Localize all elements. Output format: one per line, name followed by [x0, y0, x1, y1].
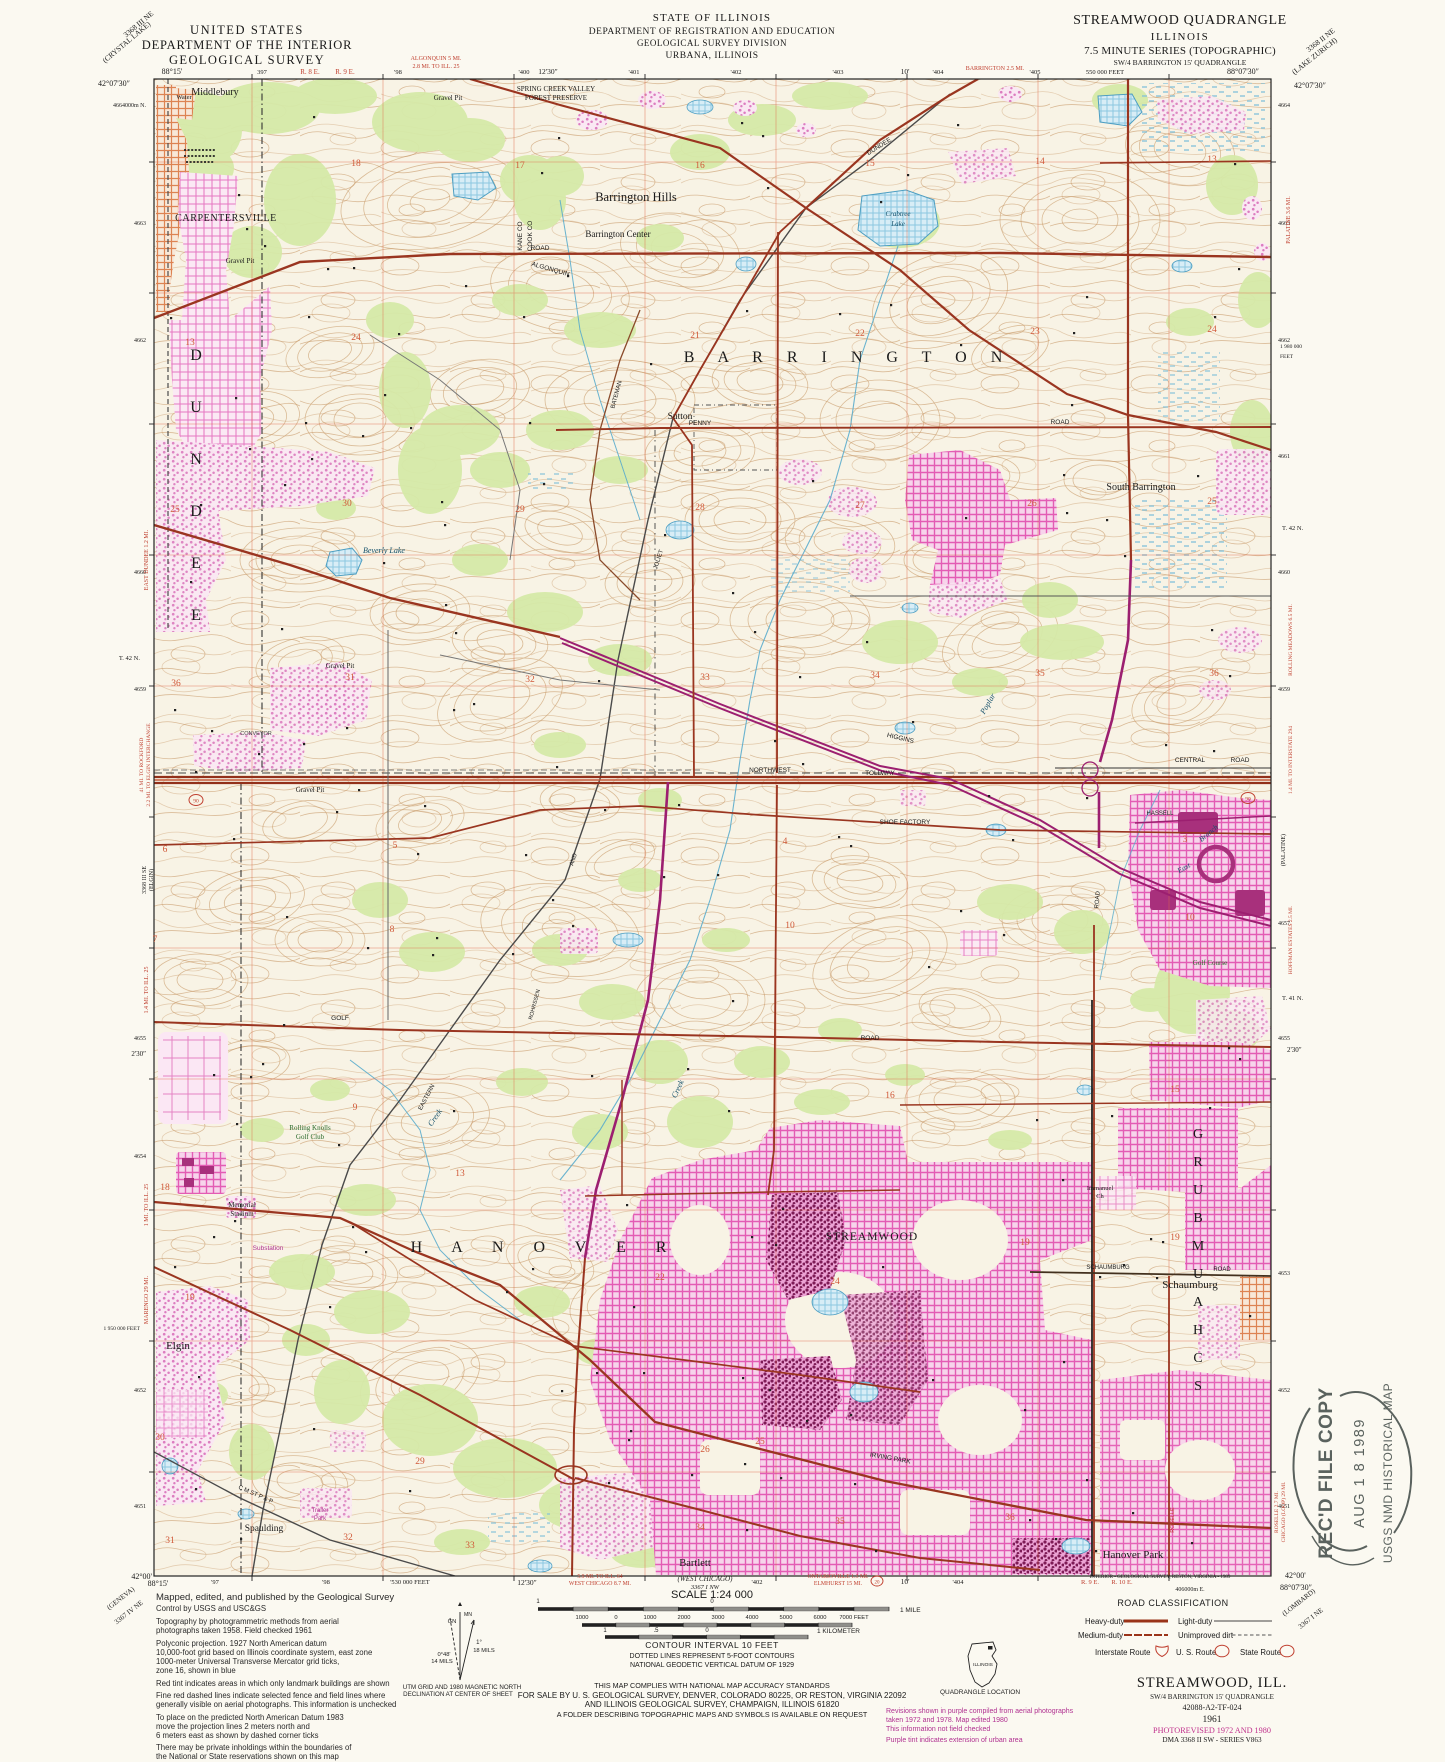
- svg-text:MARENGO 29 MI.: MARENGO 29 MI.: [144, 1275, 150, 1324]
- svg-text:'400: '400: [519, 69, 530, 76]
- svg-text:14: 14: [1035, 157, 1045, 167]
- svg-text:ILLINOIS: ILLINOIS: [973, 1662, 993, 1668]
- svg-text:R. 10 E.: R. 10 E.: [1111, 1579, 1133, 1586]
- svg-text:B A R R I N G T O N: B A R R I N G T O N: [684, 349, 1013, 366]
- svg-text:1 MI. TO ILL. 25: 1 MI. TO ILL. 25: [144, 1184, 150, 1226]
- svg-text:GOLF: GOLF: [331, 1015, 349, 1022]
- svg-text:Gravel Pit: Gravel Pit: [326, 662, 355, 670]
- svg-text:'404: '404: [953, 1579, 965, 1586]
- svg-text:4652: 4652: [134, 1388, 146, 1394]
- svg-text:photographs taken 1958. Fiel: photographs taken 1958. Field checked 19…: [156, 1626, 312, 1635]
- svg-text:(WEST CHICAGO): (WEST CHICAGO): [678, 1575, 734, 1583]
- svg-text:3000: 3000: [712, 1615, 725, 1621]
- svg-text:Park: Park: [314, 1516, 327, 1522]
- svg-text:27: 27: [855, 501, 865, 511]
- svg-text:SCHAUMBURG: SCHAUMBURG: [1086, 1265, 1130, 1271]
- svg-text:18: 18: [160, 1183, 170, 1193]
- svg-text:NORTHWEST: NORTHWEST: [749, 767, 791, 774]
- svg-text:406000m E.: 406000m E.: [1175, 1587, 1205, 1593]
- svg-text:STREAMWOOD QUADRANGLE: STREAMWOOD QUADRANGLE: [1073, 13, 1287, 28]
- svg-text:H: H: [1193, 1323, 1203, 1338]
- svg-text:'530 000 FEET: '530 000 FEET: [390, 1579, 429, 1586]
- svg-text:DOTTED LINES REPRESENT 5-FOOT: DOTTED LINES REPRESENT 5-FOOT CONTOURS: [630, 1653, 795, 1660]
- svg-text:1961: 1961: [1203, 1715, 1222, 1725]
- svg-text:S: S: [1194, 1379, 1202, 1394]
- svg-text:5000: 5000: [780, 1615, 793, 1621]
- svg-text:STREAMWOOD, ILL.: STREAMWOOD, ILL.: [1137, 1675, 1287, 1691]
- svg-text:ILLINOIS: ILLINOIS: [1151, 31, 1209, 43]
- svg-text:32: 32: [525, 675, 535, 685]
- svg-text:29: 29: [415, 1457, 425, 1467]
- svg-text:R. 9 E.: R. 9 E.: [335, 68, 355, 76]
- svg-text:36: 36: [1005, 1513, 1015, 1523]
- svg-text:'401: '401: [629, 69, 640, 76]
- svg-text:D: D: [190, 347, 202, 364]
- svg-text:(PALATINE): (PALATINE): [1280, 834, 1287, 866]
- svg-text:SW/4 BARRINGTON 15' QUADRANGLE: SW/4 BARRINGTON 15' QUADRANGLE: [1114, 58, 1247, 67]
- svg-text:SW/4 BARRINGTON 15' QUADRANGLE: SW/4 BARRINGTON 15' QUADRANGLE: [1150, 1693, 1274, 1701]
- svg-text:16: 16: [695, 161, 705, 171]
- svg-text:PALATINE 3.6 MI.: PALATINE 3.6 MI.: [1286, 196, 1292, 244]
- svg-text:18: 18: [351, 159, 361, 169]
- svg-text:SPRING CREEK VALLEY: SPRING CREEK VALLEY: [517, 85, 595, 93]
- svg-text:5.9 MI. TO ILL. 64: 5.9 MI. TO ILL. 64: [577, 1574, 622, 1580]
- svg-text:Immanuel: Immanuel: [1087, 1185, 1114, 1192]
- svg-text:R. 8 E.: R. 8 E.: [300, 68, 320, 76]
- svg-text:10,000-foot grid based on Illi: 10,000-foot grid based on Illinois coord…: [156, 1648, 372, 1657]
- svg-text:G: G: [1193, 1127, 1203, 1142]
- svg-text:Golf Course: Golf Course: [1193, 959, 1227, 967]
- svg-text:T. 42 N.: T. 42 N.: [1282, 525, 1304, 532]
- svg-text:1 MILE: 1 MILE: [900, 1607, 921, 1614]
- svg-text:STREAMWOOD: STREAMWOOD: [826, 1231, 918, 1243]
- svg-text:30: 30: [155, 1433, 165, 1443]
- svg-text:'404: '404: [933, 69, 945, 76]
- svg-text:ROAD: ROAD: [1231, 757, 1250, 764]
- svg-text:4664000m N.: 4664000m N.: [113, 103, 147, 109]
- svg-text:URBANA, ILLINOIS: URBANA, ILLINOIS: [666, 51, 759, 61]
- svg-text:19: 19: [1170, 1233, 1180, 1243]
- svg-text:ROLLING MEADOWS 6.5 MI.: ROLLING MEADOWS 6.5 MI.: [1288, 604, 1294, 676]
- svg-text:Bartlett: Bartlett: [679, 1558, 711, 1569]
- svg-text:2.8 MI. TO ILL. 25: 2.8 MI. TO ILL. 25: [413, 64, 460, 70]
- svg-text:FOR SALE BY U. S. GEOLOGICAL S: FOR SALE BY U. S. GEOLOGICAL SURVEY, DEN…: [518, 1691, 907, 1700]
- svg-text:E: E: [191, 555, 201, 572]
- svg-text:ROAD CLASSIFICATION: ROAD CLASSIFICATION: [1117, 1598, 1228, 1608]
- svg-text:the National or State reservat: the National or State reservations shown…: [156, 1752, 340, 1761]
- svg-text:MN: MN: [464, 1612, 472, 1618]
- svg-text:2000: 2000: [678, 1615, 691, 1621]
- svg-text:'403: '403: [833, 69, 844, 76]
- svg-text:ROSELLE 2.7 MI.: ROSELLE 2.7 MI.: [1274, 1490, 1280, 1532]
- svg-text:24: 24: [351, 333, 361, 343]
- svg-text:Gravel Pit: Gravel Pit: [226, 257, 255, 265]
- svg-text:10': 10': [901, 1577, 911, 1586]
- svg-text:generally visible on aerial ph: generally visible on aerial photographs.…: [156, 1700, 396, 1709]
- svg-text:SHOE FACTORY: SHOE FACTORY: [880, 819, 931, 826]
- svg-text:R: R: [1193, 1155, 1203, 1170]
- svg-text:taken 1972 and 1978. Map edi: taken 1972 and 1978. Map edited 1980: [886, 1717, 1008, 1724]
- svg-text:550 000 FEET: 550 000 FEET: [1086, 69, 1124, 76]
- svg-text:35: 35: [1035, 669, 1045, 679]
- svg-text:7.5 MINUTE SERIES (TOPOGRAPHIC: 7.5 MINUTE SERIES (TOPOGRAPHIC): [1084, 45, 1276, 57]
- svg-text:DEPARTMENT OF THE INTERIOR: DEPARTMENT OF THE INTERIOR: [142, 38, 352, 52]
- svg-text:Substation: Substation: [253, 1245, 284, 1252]
- svg-text:2'30″: 2'30″: [131, 1050, 146, 1058]
- svg-text:7000 FEET: 7000 FEET: [839, 1615, 869, 1621]
- svg-text:U: U: [1193, 1183, 1203, 1198]
- svg-text:25: 25: [1207, 497, 1217, 507]
- svg-text:19: 19: [185, 1293, 195, 1303]
- svg-text:10: 10: [1185, 913, 1195, 923]
- svg-text:COOK CO: COOK CO: [527, 221, 534, 252]
- svg-text:KANE CO: KANE CO: [517, 221, 524, 250]
- svg-text:Hanover Park: Hanover Park: [1103, 1549, 1164, 1561]
- svg-text:FEET: FEET: [1280, 354, 1294, 360]
- svg-text:6: 6: [163, 845, 168, 855]
- svg-text:25: 25: [170, 505, 180, 515]
- svg-text:19: 19: [1020, 1238, 1030, 1248]
- svg-text:QUADRANGLE LOCATION: QUADRANGLE LOCATION: [940, 1689, 1020, 1696]
- svg-text:8: 8: [390, 925, 395, 935]
- svg-text:3368 III SE: 3368 III SE: [142, 866, 148, 894]
- svg-text:42°00': 42°00': [1285, 1571, 1306, 1580]
- svg-text:Stadium: Stadium: [230, 1210, 254, 1218]
- svg-text:CARPENTERSVILLE: CARPENTERSVILLE: [175, 213, 277, 224]
- svg-text:Spaulding: Spaulding: [245, 1524, 284, 1534]
- svg-text:ONTARIOVILLE 1.3 MI.: ONTARIOVILLE 1.3 MI.: [807, 1574, 869, 1580]
- svg-text:14 MILS: 14 MILS: [431, 1659, 453, 1665]
- svg-text:R. 9 E.: R. 9 E.: [1081, 1579, 1099, 1586]
- svg-text:26: 26: [700, 1445, 710, 1455]
- svg-text:15: 15: [865, 159, 875, 169]
- svg-text:12'30″: 12'30″: [538, 67, 557, 76]
- svg-text:Medium-duty: Medium-duty: [1078, 1631, 1123, 1640]
- svg-text:24: 24: [1207, 325, 1217, 335]
- svg-text:Gravel Pit: Gravel Pit: [296, 786, 325, 794]
- svg-text:25: 25: [755, 1437, 765, 1447]
- svg-text:Memorial: Memorial: [228, 1201, 256, 1209]
- svg-text:4653: 4653: [1278, 1271, 1290, 1277]
- svg-text:7: 7: [153, 935, 158, 945]
- svg-text:B: B: [1193, 1211, 1202, 1226]
- svg-text:24: 24: [830, 1277, 840, 1287]
- svg-text:WEST CHICAGO 8.7 MI.: WEST CHICAGO 8.7 MI.: [569, 1581, 632, 1587]
- svg-text:zone 16, shown in blue: zone 16, shown in blue: [156, 1666, 236, 1675]
- svg-text:AUG 1 8 1989: AUG 1 8 1989: [1352, 1418, 1368, 1528]
- svg-text:Middlebury: Middlebury: [191, 87, 238, 98]
- svg-text:INTERIOR - GEOLOGICAL SURVEY,: INTERIOR - GEOLOGICAL SURVEY, RESTON, VI…: [1090, 1575, 1231, 1580]
- svg-text:2'30″: 2'30″: [1287, 1046, 1302, 1054]
- svg-text:9: 9: [353, 1103, 358, 1113]
- svg-text:D: D: [190, 503, 202, 520]
- svg-text:1.4 MI. TO INTERSTATE 294: 1.4 MI. TO INTERSTATE 294: [1288, 726, 1294, 794]
- svg-text:23: 23: [1030, 327, 1040, 337]
- svg-text:4659: 4659: [1278, 687, 1290, 693]
- svg-text:42°00': 42°00': [131, 1572, 152, 1581]
- svg-text:36: 36: [1209, 669, 1219, 679]
- svg-text:34: 34: [695, 1523, 705, 1533]
- svg-text:A FOLDER DESCRIBING TOPOGRAPHI: A FOLDER DESCRIBING TOPOGRAPHIC MAPS AND…: [557, 1710, 868, 1719]
- svg-text:ROSELLE: ROSELLE: [1170, 1507, 1176, 1533]
- svg-text:A: A: [1193, 1295, 1204, 1310]
- svg-text:CONTOUR INTERVAL 10 FEET: CONTOUR INTERVAL 10 FEET: [645, 1640, 779, 1650]
- svg-text:PHOTOREVISED 1972 AND 1980: PHOTOREVISED 1972 AND 1980: [1153, 1726, 1271, 1735]
- svg-text:ROAD: ROAD: [1213, 1267, 1231, 1273]
- svg-text:Crabtree: Crabtree: [885, 210, 910, 218]
- svg-text:UNITED STATES: UNITED STATES: [190, 23, 304, 37]
- svg-text:CENTRAL: CENTRAL: [1175, 757, 1206, 764]
- svg-text:UTM GRID AND 1980 MAGNETIC NOR: UTM GRID AND 1980 MAGNETIC NORTH: [403, 1684, 522, 1691]
- svg-text:Interstate Route: Interstate Route: [1095, 1648, 1150, 1657]
- svg-text:4664: 4664: [1278, 103, 1290, 109]
- svg-text:'98: '98: [322, 1579, 330, 1586]
- svg-text:Light-duty: Light-duty: [1178, 1617, 1212, 1626]
- svg-text:Water: Water: [176, 94, 192, 101]
- svg-text:ROAD: ROAD: [1051, 419, 1070, 426]
- svg-text:21: 21: [690, 331, 700, 341]
- svg-text:'405: '405: [1030, 69, 1041, 76]
- svg-text:10': 10': [901, 67, 911, 76]
- svg-text:4659: 4659: [134, 687, 146, 693]
- svg-text:1.4 MI. TO ILL. 25: 1.4 MI. TO ILL. 25: [144, 967, 150, 1014]
- svg-text:42°07'30″: 42°07'30″: [98, 79, 130, 88]
- svg-text:TOLLWAY: TOLLWAY: [865, 770, 895, 777]
- svg-text:E: E: [191, 607, 201, 624]
- svg-text:Control by USGS and USC&GS: Control by USGS and USC&GS: [156, 1604, 266, 1613]
- svg-text:'402: '402: [752, 1579, 763, 1586]
- svg-text:32: 32: [343, 1533, 353, 1543]
- svg-text:13: 13: [455, 1169, 465, 1179]
- svg-text:Barrington Center: Barrington Center: [585, 229, 650, 239]
- svg-text:31: 31: [345, 673, 355, 683]
- svg-text:U: U: [190, 399, 202, 416]
- svg-text:Rolling Knolls: Rolling Knolls: [289, 1124, 331, 1132]
- svg-text:0°48': 0°48': [437, 1652, 450, 1658]
- svg-text:6 meters east as shown by dash: 6 meters east as shown by dashed corner …: [156, 1731, 319, 1740]
- svg-text:Gravel Pit: Gravel Pit: [434, 94, 463, 102]
- svg-text:30: 30: [342, 499, 352, 509]
- svg-text:1 950 000 FEET: 1 950 000 FEET: [103, 1326, 140, 1332]
- svg-text:4651: 4651: [134, 1504, 146, 1510]
- svg-text:Fine red dashed lines indicate: Fine red dashed lines indicate selected …: [156, 1691, 385, 1700]
- svg-text:13: 13: [185, 338, 195, 348]
- svg-text:M: M: [1192, 1239, 1205, 1254]
- svg-text:90: 90: [1245, 797, 1251, 803]
- svg-text:HASSELL: HASSELL: [1146, 811, 1174, 817]
- svg-text:90: 90: [193, 799, 199, 805]
- svg-text:16: 16: [885, 1091, 895, 1101]
- svg-text:ROAD: ROAD: [861, 1035, 880, 1042]
- svg-text:4655: 4655: [1278, 1036, 1290, 1042]
- svg-text:22: 22: [655, 1273, 665, 1283]
- svg-text:1000: 1000: [576, 1615, 589, 1621]
- svg-text:Heavy-duty: Heavy-duty: [1085, 1617, 1125, 1626]
- svg-text:Trailer: Trailer: [312, 1508, 329, 1514]
- svg-text:4: 4: [783, 837, 788, 847]
- svg-text:DEPARTMENT OF REGISTRATION AND: DEPARTMENT OF REGISTRATION AND EDUCATION: [589, 27, 835, 37]
- svg-text:DMA 3368 II SW - SERIES V863: DMA 3368 II SW - SERIES V863: [1162, 1736, 1262, 1744]
- svg-text:NATIONAL GEODETIC VERTICAL DAT: NATIONAL GEODETIC VERTICAL DATUM OF 1929: [630, 1662, 794, 1669]
- svg-text:42°07'30″: 42°07'30″: [1294, 81, 1326, 90]
- svg-text:Red tint indicates areas in wh: Red tint indicates areas in which only l…: [156, 1679, 390, 1688]
- svg-text:10: 10: [785, 921, 795, 931]
- svg-text:(ELGIN): (ELGIN): [148, 869, 155, 891]
- svg-text:C: C: [1193, 1351, 1202, 1366]
- svg-text:35: 35: [835, 1517, 845, 1527]
- svg-text:6000: 6000: [814, 1615, 827, 1621]
- svg-text:Unimproved dirt: Unimproved dirt: [1178, 1631, 1234, 1640]
- svg-text:4660: 4660: [1278, 570, 1290, 576]
- svg-text:28: 28: [695, 503, 705, 513]
- svg-text:GEOLOGICAL SURVEY DIVISION: GEOLOGICAL SURVEY DIVISION: [637, 38, 787, 48]
- svg-text:Barrington Hills: Barrington Hills: [595, 190, 677, 204]
- svg-text:This information not field che: This information not field checked: [886, 1726, 990, 1733]
- svg-text:4000: 4000: [746, 1615, 759, 1621]
- svg-text:HOFFMAN ESTATES 2.5 MI.: HOFFMAN ESTATES 2.5 MI.: [1288, 905, 1294, 974]
- svg-text:1000: 1000: [644, 1615, 657, 1621]
- svg-text:AND ILLINOIS GEOLOGICAL SURVEY: AND ILLINOIS GEOLOGICAL SURVEY, CHAMPAIG…: [585, 1700, 840, 1709]
- svg-text:4654: 4654: [134, 1154, 146, 1160]
- svg-text:State Route: State Route: [1240, 1648, 1281, 1657]
- svg-text:12'30″: 12'30″: [517, 1578, 536, 1587]
- svg-text:PENNY: PENNY: [689, 420, 712, 427]
- svg-text:31: 31: [165, 1536, 175, 1546]
- svg-text:33: 33: [465, 1541, 475, 1551]
- svg-text:41 MI. TO ROCKFORD: 41 MI. TO ROCKFORD: [139, 738, 145, 793]
- svg-text:Mapped, edited, and published: Mapped, edited, and published by the Geo…: [156, 1592, 394, 1603]
- svg-text:15: 15: [1170, 1085, 1180, 1095]
- svg-text:THIS MAP COMPLIES WITH NATIONA: THIS MAP COMPLIES WITH NATIONAL MAP ACCU…: [594, 1681, 830, 1690]
- svg-text:Lake: Lake: [890, 220, 905, 228]
- svg-text:4652: 4652: [1278, 1388, 1290, 1394]
- svg-text:Topography by photogrammetric: Topography by photogrammetric methods fr…: [156, 1617, 339, 1626]
- svg-text:CONVEYOR: CONVEYOR: [240, 731, 272, 737]
- svg-text:Elgin: Elgin: [166, 1340, 190, 1352]
- svg-text:2.2 MI. TO ELGIN INTERCHANGE: 2.2 MI. TO ELGIN INTERCHANGE: [146, 723, 152, 807]
- svg-text:4662: 4662: [134, 338, 146, 344]
- svg-text:5: 5: [393, 841, 398, 851]
- svg-text:ELMHURST 15 MI.: ELMHURST 15 MI.: [814, 1581, 863, 1587]
- svg-text:USGS NMD HISTORICAL MAP: USGS NMD HISTORICAL MAP: [1381, 1383, 1395, 1563]
- svg-text:22: 22: [855, 329, 865, 339]
- svg-text:T. 41 N.: T. 41 N.: [1282, 995, 1304, 1002]
- svg-text:GN: GN: [448, 1619, 457, 1625]
- svg-text:FOREST PRESERVE: FOREST PRESERVE: [525, 94, 587, 102]
- svg-text:N: N: [190, 451, 202, 468]
- svg-text:BARRINGTON 2.5 MI.: BARRINGTON 2.5 MI.: [966, 66, 1025, 72]
- svg-text:REC'D FILE COPY: REC'D FILE COPY: [1316, 1387, 1337, 1558]
- svg-text:Schaumburg: Schaumburg: [1162, 1279, 1218, 1291]
- svg-text:1°: 1°: [476, 1640, 482, 1646]
- svg-text:13: 13: [1207, 155, 1217, 165]
- svg-text:29: 29: [515, 505, 525, 515]
- svg-text:4661: 4661: [1278, 454, 1290, 460]
- svg-text:88°15': 88°15': [162, 67, 183, 76]
- svg-text:1 980 000: 1 980 000: [1280, 344, 1302, 350]
- svg-text:26: 26: [1027, 499, 1037, 509]
- svg-text:34: 34: [870, 671, 880, 681]
- svg-text:'98: '98: [394, 69, 402, 76]
- svg-text:Polyconic projection. 1927 N: Polyconic projection. 1927 North America…: [156, 1639, 327, 1648]
- svg-text:There may be private inholding: There may be private inholdings within t…: [156, 1743, 352, 1752]
- svg-text:'97: '97: [211, 1579, 219, 1586]
- svg-text:36: 36: [171, 679, 181, 689]
- svg-text:South Barrington: South Barrington: [1106, 482, 1175, 493]
- svg-text:20: 20: [875, 1581, 881, 1586]
- svg-text:.5: .5: [653, 1628, 659, 1634]
- svg-text:Ch: Ch: [1096, 1193, 1104, 1200]
- svg-text:33: 33: [700, 673, 710, 683]
- svg-text:88°07'30″: 88°07'30″: [1227, 67, 1259, 76]
- svg-text:1000-meter Universal Transvers: 1000-meter Universal Transverse Mercator…: [156, 1657, 339, 1666]
- svg-text:STATE OF ILLINOIS: STATE OF ILLINOIS: [653, 12, 772, 24]
- svg-text:Beverly Lake: Beverly Lake: [363, 546, 405, 555]
- svg-text:17: 17: [515, 161, 525, 171]
- svg-text:0: 0: [614, 1615, 617, 1621]
- svg-text:GEOLOGICAL SURVEY: GEOLOGICAL SURVEY: [169, 53, 325, 67]
- svg-text:'402: '402: [731, 69, 742, 76]
- svg-text:1 KILOMETER: 1 KILOMETER: [817, 1628, 860, 1635]
- svg-text:Purple tint indicates extensio: Purple tint indicates extension of urban…: [886, 1737, 1023, 1744]
- svg-text:U. S. Route: U. S. Route: [1176, 1648, 1216, 1657]
- svg-text:Revisions shown in purple comp: Revisions shown in purple compiled from …: [886, 1708, 1074, 1715]
- svg-text:ALGONQUIN 5 MI.: ALGONQUIN 5 MI.: [411, 56, 462, 62]
- svg-text:Golf Club: Golf Club: [296, 1133, 325, 1141]
- svg-text:CHICAGO (LOOP) 29 MI.: CHICAGO (LOOP) 29 MI.: [1280, 1481, 1287, 1542]
- svg-text:42088-A2-TF-024: 42088-A2-TF-024: [1182, 1703, 1241, 1712]
- svg-text:T. 42 N.: T. 42 N.: [119, 655, 141, 662]
- svg-text:18 MILS: 18 MILS: [473, 1648, 495, 1654]
- svg-text:DECLINATION AT CENTER OF SHEET: DECLINATION AT CENTER OF SHEET: [403, 1691, 513, 1698]
- svg-text:3: 3: [1183, 835, 1188, 845]
- svg-text:4663: 4663: [134, 221, 146, 227]
- svg-text:397: 397: [257, 69, 268, 76]
- svg-text:move the projection lines 2 me: move the projection lines 2 meters north…: [156, 1722, 310, 1731]
- svg-text:To place on the predicted Nort: To place on the predicted North American…: [156, 1713, 344, 1722]
- svg-text:4655: 4655: [134, 1036, 146, 1042]
- svg-text:EAST DUNDEE 1.2 MI.: EAST DUNDEE 1.2 MI.: [144, 529, 150, 590]
- svg-text:H A N O V E R: H A N O V E R: [411, 1239, 680, 1256]
